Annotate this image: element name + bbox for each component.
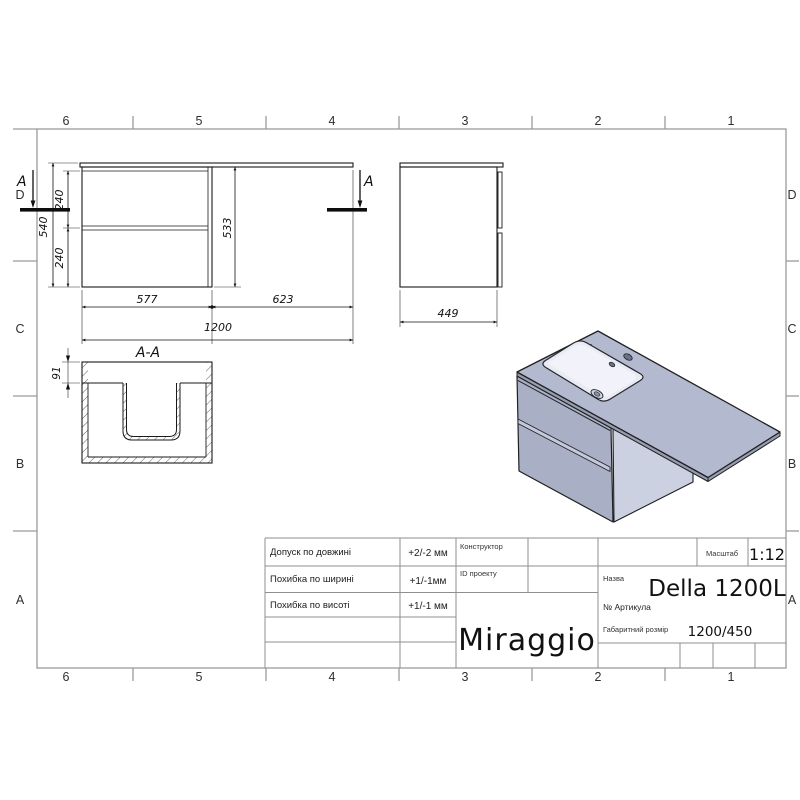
- dim-577: 577: [137, 293, 158, 306]
- dim-1200: 1200: [204, 321, 232, 334]
- constructor-label: Конструктор: [460, 542, 503, 551]
- zone-row-left: D: [15, 188, 24, 202]
- scale-value: 1:12: [749, 545, 785, 564]
- scale-label: Масштаб: [706, 549, 738, 558]
- zone-col-top: 1: [728, 114, 735, 128]
- section-letter: A: [16, 174, 27, 190]
- zone-col-top: 3: [462, 114, 469, 128]
- tolerance-label: Допуск по довжині: [270, 547, 351, 558]
- product-name: Della 1200L: [648, 576, 786, 602]
- zone-col-bottom: 4: [329, 670, 336, 684]
- iso-view: [517, 331, 780, 522]
- zone-row-right: B: [788, 457, 796, 471]
- cut-plane-bar: [327, 208, 367, 212]
- size-value: 1200/450: [688, 624, 753, 640]
- title-block: Допуск по довжині +2/-2 мм Похибка по ши…: [265, 538, 786, 668]
- zone-row-left: A: [16, 593, 25, 607]
- brand-logo: Miraggio: [458, 623, 596, 658]
- name-label: Назва: [603, 574, 625, 583]
- zone-row-left: C: [15, 322, 24, 336]
- dim-arrow: [66, 383, 70, 390]
- tolerance-value: +2/-2 мм: [408, 548, 448, 559]
- side-view: 449: [400, 163, 503, 327]
- cut-plane-bar: [20, 208, 70, 212]
- drawing-canvas: 6 5 4 3 2 1 6 5 4 3 2 1 D C B A D C B A: [0, 0, 800, 800]
- drawing-sheet: 6 5 4 3 2 1 6 5 4 3 2 1 D C B A D C B A: [0, 0, 800, 800]
- tolerance-value: +1/-1мм: [410, 576, 447, 587]
- dim-449: 449: [438, 307, 459, 320]
- dim-240-top: 240: [53, 190, 66, 211]
- dim-240-bottom: 240: [53, 248, 66, 269]
- size-label: Габаритний розмір: [603, 625, 668, 634]
- dim-540: 540: [37, 217, 50, 238]
- front-view: 540 240 240 533 577 623 1200 A A: [16, 163, 374, 344]
- dim-91: 91: [51, 366, 63, 379]
- article-label: № Артикула: [603, 602, 651, 612]
- zone-row-right: D: [787, 188, 796, 202]
- section-title: A-A: [135, 345, 160, 361]
- zone-col-bottom: 2: [595, 670, 602, 684]
- tolerance-label: Похибка по ширині: [270, 574, 354, 585]
- tolerance-value: +1/-1 мм: [408, 601, 448, 612]
- iso-small-hole: [590, 344, 592, 346]
- dim-533: 533: [221, 218, 234, 239]
- dim-junction-dot: [210, 305, 214, 309]
- dim-arrow: [66, 356, 70, 363]
- zone-col-bottom: 1: [728, 670, 735, 684]
- zone-col-top: 5: [196, 114, 203, 128]
- zone-col-bottom: 6: [63, 670, 70, 684]
- zone-col-bottom: 3: [462, 670, 469, 684]
- section-cut-marker-right: A: [327, 170, 374, 212]
- section-view: A-A 91: [51, 345, 212, 463]
- dim-623: 623: [273, 293, 294, 306]
- tolerance-label: Похибка по висоті: [270, 600, 350, 611]
- zone-row-left: B: [16, 457, 24, 471]
- section-arrowhead: [358, 201, 363, 209]
- zone-col-bottom: 5: [196, 670, 203, 684]
- zone-row-right: A: [788, 593, 797, 607]
- project-id-label: ID проекту: [460, 569, 497, 578]
- section-letter: A: [363, 174, 374, 190]
- tolerance-table: Допуск по довжині +2/-2 мм Похибка по ши…: [270, 547, 448, 612]
- zone-row-right: C: [787, 322, 796, 336]
- zone-col-top: 4: [329, 114, 336, 128]
- section-hatching: [82, 362, 212, 463]
- zone-col-top: 6: [63, 114, 70, 128]
- section-arrowhead: [31, 201, 36, 209]
- zone-col-top: 2: [595, 114, 602, 128]
